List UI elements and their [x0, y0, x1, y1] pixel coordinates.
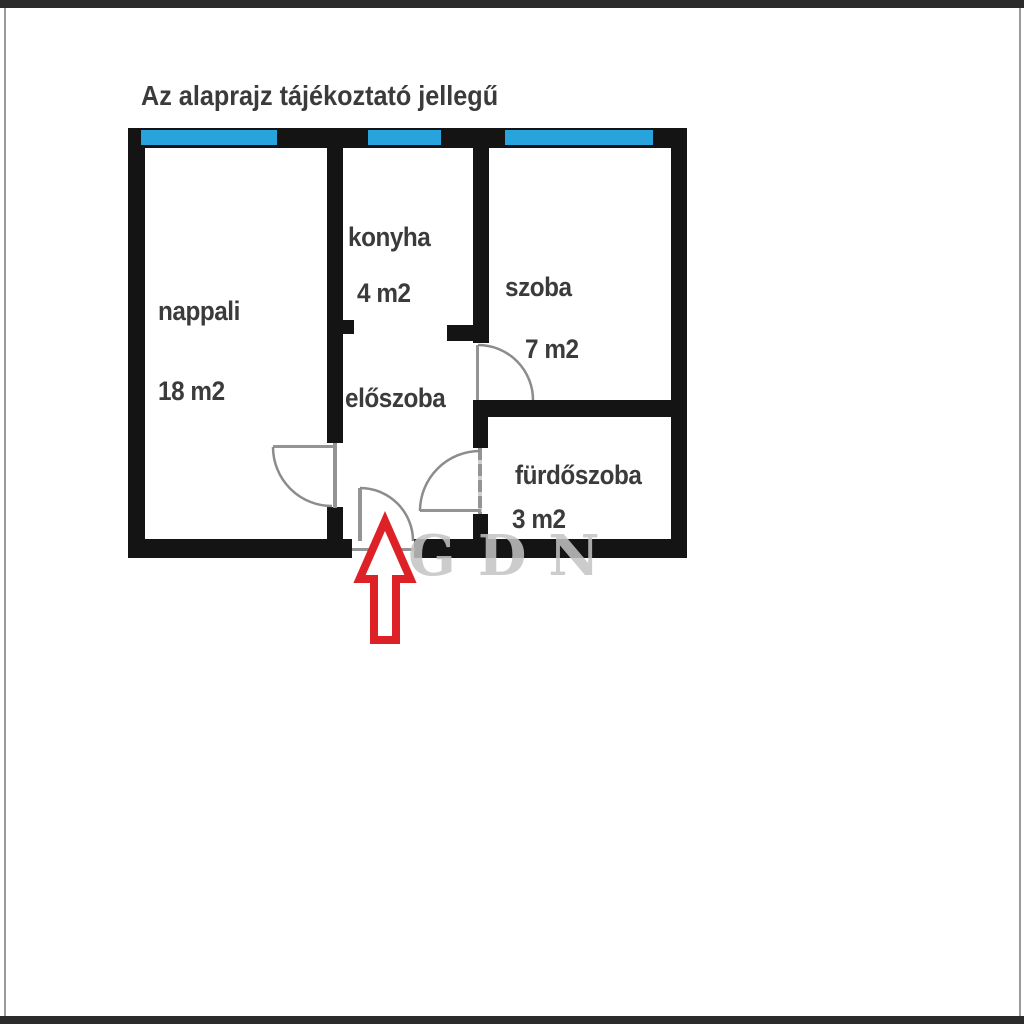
bathroom-door-arc — [420, 451, 480, 511]
szoba-door-leaf — [476, 345, 479, 400]
wall-right — [671, 128, 687, 558]
wall-bathroom-left-upper — [473, 417, 488, 448]
room-label-furdoszoba: fürdőszoba — [515, 462, 641, 489]
room-label-eloszoba: előszoba — [345, 385, 445, 412]
wall-bottom-left — [128, 539, 352, 558]
room-area-szoba: 7 m2 — [525, 336, 579, 363]
entrance-door-arc — [360, 488, 413, 541]
room-area-nappali: 18 m2 — [158, 378, 225, 405]
frame-top-bar — [0, 0, 1024, 8]
floor-plan-image: Az alaprajz tájékoztató jellegű nappali … — [0, 0, 1024, 1024]
room-label-szoba: szoba — [505, 274, 572, 301]
room-area-konyha: 4 m2 — [357, 280, 411, 307]
wall-nappali-divider-upper — [327, 138, 343, 443]
window-konyha — [368, 130, 441, 145]
wall-left — [128, 128, 145, 558]
wall-szoba-stub — [447, 325, 473, 341]
bathroom-door-leaf — [420, 509, 481, 512]
bathroom-door-frame — [478, 448, 482, 514]
wall-bathroom-divider — [473, 400, 687, 417]
entrance-door-leaf — [358, 488, 362, 541]
wall-konyha-stub — [343, 320, 354, 334]
plan-title: Az alaprajz tájékoztató jellegű — [141, 82, 498, 110]
entrance-door-threshold — [352, 548, 415, 551]
nappali-door-arc — [273, 447, 332, 506]
room-label-nappali: nappali — [158, 298, 240, 325]
nappali-door-frame — [333, 443, 337, 508]
nappali-door-leaf — [273, 445, 335, 448]
wall-szoba-divider-upper — [473, 138, 489, 343]
wall-nappali-divider-lower — [327, 507, 343, 545]
entrance-arrow-icon — [360, 521, 411, 640]
window-szoba — [505, 130, 653, 145]
watermark-text: GDN — [408, 528, 622, 584]
frame-right-border — [1019, 8, 1021, 1016]
room-label-konyha: konyha — [348, 224, 430, 251]
frame-bottom-bar — [0, 1016, 1024, 1024]
frame-left-border — [4, 8, 6, 1016]
window-nappali — [141, 130, 277, 145]
